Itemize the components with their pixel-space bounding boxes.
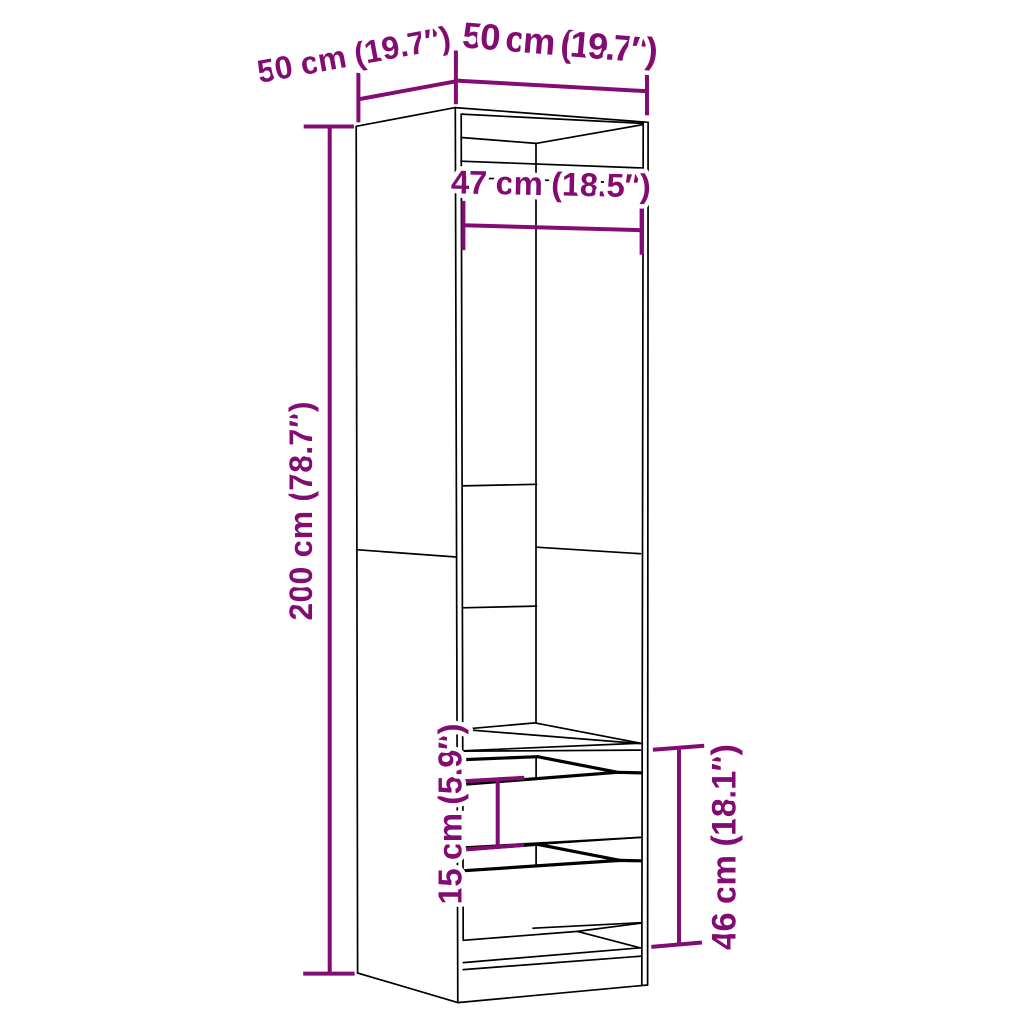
svg-text:46 cm (18.1″): 46 cm (18.1″) bbox=[706, 744, 744, 950]
svg-text:200 cm (78.7″): 200 cm (78.7″) bbox=[283, 402, 319, 621]
svg-text:15 cm (5.9″): 15 cm (5.9″) bbox=[432, 724, 469, 905]
svg-text:47 cm (18.5″): 47 cm (18.5″) bbox=[451, 163, 652, 204]
